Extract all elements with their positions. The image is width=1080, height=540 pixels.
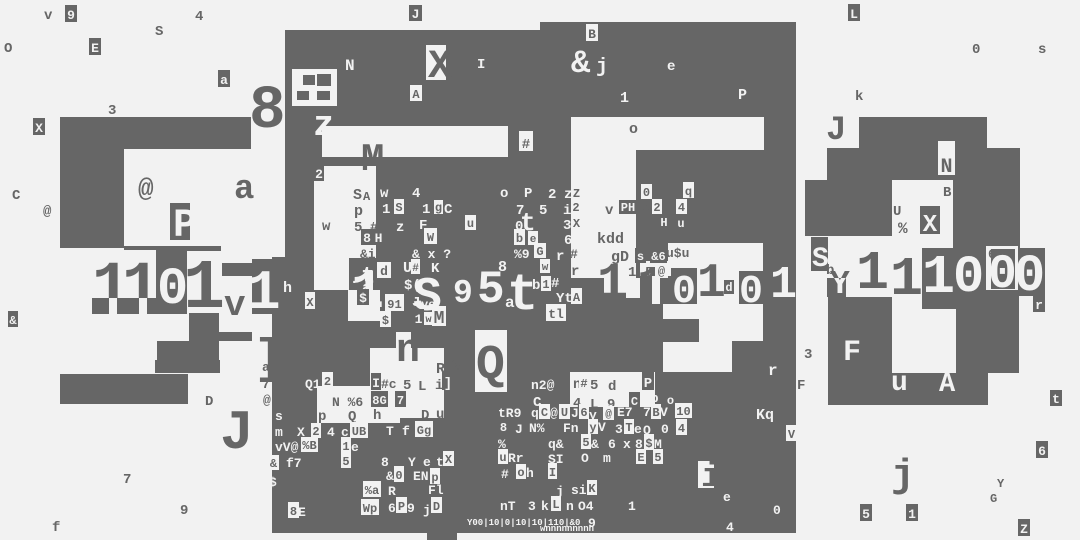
svg-text:1: 1: [890, 248, 923, 311]
svg-text:n: n: [566, 499, 574, 514]
svg-text:I: I: [477, 57, 485, 73]
svg-text:P: P: [738, 87, 747, 104]
svg-text:T: T: [814, 229, 820, 240]
svg-text:n: n: [396, 329, 420, 374]
svg-text:2: 2: [548, 187, 556, 203]
svg-text:$: $: [382, 314, 389, 328]
svg-text:d: d: [608, 379, 616, 395]
svg-text:L: L: [850, 7, 858, 22]
svg-text:0: 0: [953, 248, 984, 307]
svg-text:G: G: [990, 492, 997, 506]
svg-text:j: j: [423, 503, 431, 518]
svg-text:1: 1: [122, 253, 160, 325]
svg-text:J: J: [515, 422, 523, 437]
svg-text:S: S: [395, 201, 402, 215]
svg-text:&: &: [386, 469, 394, 484]
svg-text:5: 5: [654, 451, 661, 465]
svg-text:r: r: [768, 362, 778, 380]
svg-text:1: 1: [770, 260, 797, 311]
svg-text:8: 8: [381, 455, 389, 470]
svg-text:e: e: [723, 490, 731, 505]
svg-text:b: b: [371, 307, 379, 323]
svg-text:1: 1: [415, 312, 423, 327]
svg-text:k: k: [669, 218, 677, 233]
svg-text:7: 7: [397, 394, 404, 408]
svg-text:D: D: [205, 394, 213, 410]
svg-text:v: v: [44, 8, 53, 24]
svg-text:5: 5: [590, 378, 598, 394]
svg-text:3: 3: [108, 103, 116, 119]
svg-text:w: w: [380, 186, 389, 202]
svg-text:M: M: [434, 309, 445, 329]
svg-text:4: 4: [678, 201, 685, 215]
svg-text:f: f: [402, 424, 410, 439]
svg-text:1: 1: [908, 507, 916, 522]
svg-text:o: o: [500, 186, 508, 202]
svg-text:p: p: [354, 203, 363, 220]
svg-text:4: 4: [327, 425, 335, 440]
svg-text:z: z: [396, 220, 404, 236]
svg-text:u: u: [677, 217, 684, 231]
svg-text:#: #: [522, 137, 530, 153]
svg-text:]: ]: [444, 376, 452, 392]
svg-text:7: 7: [123, 472, 131, 488]
svg-text:U: U: [893, 204, 901, 220]
svg-text:e: e: [351, 440, 359, 455]
svg-text:2: 2: [312, 425, 319, 439]
svg-text:J: J: [571, 406, 579, 421]
svg-text:#: #: [551, 276, 559, 292]
svg-text:A: A: [363, 190, 371, 204]
svg-text:10: 10: [676, 405, 690, 419]
svg-text:7: 7: [262, 377, 270, 392]
svg-text:6: 6: [1038, 444, 1046, 459]
svg-text:#c: #c: [381, 377, 397, 392]
svg-text:q&: q&: [548, 437, 564, 452]
svg-text:Q: Q: [261, 490, 269, 505]
svg-text:o: o: [667, 394, 674, 408]
svg-text:r: r: [556, 249, 564, 265]
svg-text:K: K: [588, 482, 596, 496]
svg-text:5: 5: [582, 436, 589, 450]
svg-text:w: w: [425, 315, 431, 326]
svg-text:6: 6: [988, 247, 996, 262]
svg-text:&6: &6: [651, 250, 665, 264]
svg-text:1: 1: [922, 246, 955, 309]
svg-text:f7: f7: [286, 456, 302, 471]
svg-text:tR9: tR9: [498, 406, 522, 421]
svg-text:si: si: [571, 483, 587, 498]
svg-text:&: &: [591, 437, 599, 452]
svg-text:a: a: [220, 73, 228, 88]
svg-text:z: z: [313, 105, 335, 146]
svg-text:y: y: [589, 421, 596, 435]
svg-text:%a: %a: [365, 484, 379, 498]
svg-text:P: P: [644, 376, 652, 392]
svg-text:4: 4: [412, 186, 420, 202]
svg-text:&: &: [571, 45, 591, 82]
svg-text:1: 1: [247, 261, 281, 325]
svg-text:91: 91: [387, 298, 401, 312]
svg-text:9: 9: [67, 8, 75, 23]
svg-text:i: i: [701, 459, 721, 497]
svg-text:w: w: [542, 262, 549, 274]
svg-text:1: 1: [382, 202, 390, 218]
svg-text:0: 0: [972, 42, 980, 58]
svg-text:V: V: [788, 428, 796, 442]
svg-text:b: b: [532, 278, 540, 294]
svg-text:0: 0: [672, 270, 696, 315]
svg-text:V: V: [598, 420, 606, 435]
svg-text:@: @: [263, 393, 271, 408]
svg-text:B: B: [588, 27, 596, 42]
svg-text:C: C: [444, 202, 453, 218]
svg-text:x: x: [623, 437, 631, 452]
svg-text:2: 2: [315, 167, 323, 182]
svg-text:4: 4: [726, 520, 734, 535]
svg-text:Kq: Kq: [756, 407, 774, 424]
svg-text:N%: N%: [529, 421, 545, 436]
svg-text:N: N: [345, 57, 355, 75]
svg-text:h: h: [373, 408, 381, 424]
svg-text:u: u: [891, 368, 908, 399]
svg-text:1: 1: [628, 265, 636, 281]
svg-text:@: @: [43, 204, 52, 220]
svg-text:2: 2: [324, 375, 331, 389]
svg-text:d: d: [725, 281, 732, 295]
svg-text:Rr: Rr: [508, 451, 524, 466]
svg-text:a: a: [505, 294, 515, 312]
svg-text:0: 0: [395, 469, 402, 483]
svg-text:kdd: kdd: [597, 231, 624, 248]
svg-text:Fl: Fl: [428, 483, 444, 498]
svg-text:E: E: [91, 41, 99, 56]
svg-text:Q1: Q1: [305, 377, 321, 392]
svg-text:1: 1: [342, 440, 349, 454]
svg-text:Y: Y: [408, 455, 416, 470]
svg-text:&: &: [270, 457, 278, 471]
svg-text:&: &: [643, 202, 652, 218]
svg-text:F: F: [797, 378, 805, 394]
svg-text:h: h: [283, 280, 292, 297]
svg-text:wnnnnnnnnn: wnnnnnnnnn: [540, 524, 594, 534]
svg-text:I: I: [549, 466, 556, 480]
svg-text:%9: %9: [514, 247, 530, 262]
svg-text:b: b: [826, 263, 834, 279]
svg-text:6: 6: [580, 406, 587, 420]
svg-text:#: #: [412, 263, 419, 275]
svg-text:O4: O4: [578, 499, 594, 514]
svg-text:u: u: [436, 407, 444, 423]
svg-text:m: m: [603, 451, 611, 466]
svg-text:R: R: [388, 484, 396, 499]
svg-text:L: L: [552, 498, 559, 512]
svg-text:u: u: [499, 451, 506, 465]
svg-text:$: $: [359, 291, 367, 306]
svg-text:W: W: [427, 231, 435, 245]
svg-text:b: b: [516, 232, 523, 246]
svg-text:A: A: [412, 88, 420, 102]
svg-text:$: $: [645, 437, 652, 451]
svg-text:Gg: Gg: [417, 424, 431, 438]
svg-text:H: H: [375, 231, 383, 246]
svg-text:9: 9: [453, 275, 473, 312]
svg-text:X: X: [573, 217, 581, 231]
svg-text:8: 8: [249, 77, 286, 146]
svg-text:s: s: [1038, 42, 1046, 58]
svg-text:E: E: [298, 505, 306, 520]
svg-text:@: @: [658, 265, 665, 279]
svg-text:Y: Y: [997, 477, 1005, 491]
svg-text:q: q: [531, 406, 539, 421]
svg-text:3: 3: [804, 347, 812, 363]
svg-text:gD: gD: [611, 249, 629, 266]
svg-text:5: 5: [539, 203, 547, 219]
svg-text:r: r: [571, 264, 579, 280]
svg-text:X: X: [428, 45, 452, 90]
svg-text:Z: Z: [1020, 522, 1028, 537]
svg-text:$(: $(: [404, 278, 421, 294]
svg-text:@: @: [605, 409, 612, 421]
svg-text:P: P: [524, 186, 532, 202]
svg-text:B: B: [652, 406, 659, 420]
svg-text:5: 5: [862, 507, 870, 522]
svg-text:O: O: [581, 451, 589, 466]
svg-text:1: 1: [620, 90, 629, 107]
svg-text:s: s: [275, 409, 283, 424]
svg-text:e: e: [667, 59, 675, 75]
svg-text:#: #: [580, 377, 587, 391]
svg-text:A: A: [573, 291, 581, 305]
svg-text:g: g: [435, 201, 442, 215]
svg-text:vV@: vV@: [275, 440, 299, 455]
svg-text:1: 1: [183, 250, 225, 329]
svg-text:X: X: [306, 296, 314, 310]
svg-text:mp: mp: [643, 391, 659, 406]
svg-text:j: j: [891, 454, 915, 499]
svg-text:0: 0: [661, 422, 669, 437]
svg-text:o: o: [629, 121, 638, 138]
svg-text:5: 5: [342, 455, 349, 469]
svg-text:Q: Q: [476, 339, 505, 393]
svg-text:8G: 8G: [372, 394, 386, 408]
svg-text:D: D: [433, 500, 440, 514]
svg-text:4: 4: [195, 9, 203, 25]
svg-text:j: j: [596, 56, 608, 79]
svg-text:K: K: [431, 261, 440, 277]
svg-text:#: #: [570, 247, 578, 262]
svg-text:m: m: [275, 425, 283, 440]
svg-text:E7: E7: [617, 405, 633, 420]
svg-text:5: 5: [645, 265, 653, 281]
svg-text:I: I: [372, 376, 380, 391]
svg-text:8: 8: [290, 505, 297, 519]
svg-text:t: t: [1052, 392, 1060, 407]
svg-text:s: s: [637, 250, 644, 264]
svg-text:X: X: [35, 121, 43, 136]
svg-text:L: L: [418, 379, 426, 395]
svg-text:E: E: [637, 451, 644, 465]
svg-text:0: 0: [773, 503, 781, 518]
svg-text:H: H: [660, 216, 667, 230]
svg-text:d: d: [380, 264, 388, 279]
svg-text:PH: PH: [621, 201, 635, 215]
svg-text:%: %: [898, 220, 908, 238]
svg-text:M: M: [361, 138, 384, 182]
svg-text:S: S: [155, 24, 163, 40]
svg-text:1: 1: [542, 278, 549, 292]
svg-text:P: P: [398, 500, 405, 514]
svg-text:U: U: [561, 406, 568, 420]
svg-text:9: 9: [407, 501, 415, 516]
svg-text:n2@: n2@: [531, 378, 555, 393]
svg-text:8: 8: [498, 259, 507, 276]
svg-text:v: v: [605, 203, 614, 219]
svg-text:w: w: [322, 219, 331, 235]
svg-text:8: 8: [363, 231, 371, 246]
svg-text:J: J: [220, 401, 254, 465]
svg-text:6: 6: [608, 437, 616, 452]
svg-text:.: .: [350, 272, 358, 288]
svg-text:1: 1: [628, 499, 636, 514]
svg-text:p: p: [431, 471, 438, 485]
svg-text:@: @: [138, 174, 154, 204]
svg-text:%B: %B: [302, 439, 316, 453]
svg-text:t: t: [436, 455, 444, 470]
svg-text:&i: &i: [360, 247, 376, 262]
svg-text:k: k: [855, 89, 863, 105]
svg-text:u$u: u$u: [666, 246, 689, 261]
svg-text:6: 6: [388, 501, 396, 516]
svg-text:EN: EN: [413, 469, 429, 484]
svg-text:Fn: Fn: [563, 421, 579, 436]
svg-text:v: v: [224, 285, 246, 326]
svg-text:4: 4: [678, 422, 685, 436]
svg-text:V: V: [660, 405, 668, 420]
svg-text:f: f: [52, 520, 60, 536]
svg-text:p: p: [318, 409, 326, 425]
svg-text:J: J: [412, 295, 420, 311]
svg-text:G: G: [536, 245, 543, 259]
svg-text:u: u: [467, 217, 474, 231]
svg-text:#: #: [501, 467, 509, 482]
svg-text:Z: Z: [573, 187, 580, 201]
svg-text:3: 3: [615, 422, 623, 437]
svg-text:k: k: [581, 218, 589, 234]
svg-text:X: X: [923, 212, 938, 239]
svg-text:a: a: [262, 360, 270, 375]
svg-text:A: A: [939, 370, 956, 400]
svg-text:U: U: [403, 260, 412, 277]
svg-text:N %6: N %6: [332, 395, 363, 410]
svg-text:8: 8: [500, 421, 507, 435]
svg-text:O: O: [4, 41, 12, 57]
svg-text:e: e: [634, 422, 642, 437]
svg-text:7: 7: [516, 203, 524, 219]
svg-text:2: 2: [653, 201, 660, 215]
svg-text:C: C: [541, 406, 548, 420]
svg-text:Wp: Wp: [363, 502, 377, 516]
svg-text:P: P: [173, 204, 197, 249]
svg-text:q: q: [685, 185, 692, 199]
svg-text:&: &: [9, 314, 17, 328]
svg-text:i: i: [563, 203, 571, 219]
svg-text:2: 2: [572, 201, 579, 215]
svg-text:S: S: [353, 187, 362, 204]
svg-text:F: F: [843, 336, 861, 370]
svg-text:N: N: [940, 156, 952, 179]
svg-text:7: 7: [651, 218, 659, 234]
svg-text:X: X: [445, 453, 453, 467]
svg-text:3: 3: [528, 499, 536, 514]
svg-text:9: 9: [180, 503, 188, 519]
svg-text:@: @: [550, 406, 558, 421]
svg-text:e: e: [423, 455, 431, 470]
svg-text:B: B: [943, 185, 952, 201]
svg-text:nT: nT: [500, 499, 516, 514]
svg-text:o: o: [517, 466, 524, 480]
svg-text:C: C: [12, 188, 21, 204]
svg-text:J: J: [412, 7, 420, 22]
svg-text:3: 3: [563, 218, 571, 234]
svg-text:7: 7: [643, 405, 651, 420]
svg-text:1: 1: [422, 202, 430, 218]
svg-text:1: 1: [697, 257, 726, 311]
svg-text:J: J: [826, 112, 846, 150]
svg-text:T: T: [386, 424, 394, 439]
svg-text:h: h: [526, 466, 534, 481]
svg-text:a: a: [234, 171, 254, 209]
svg-text:UB: UB: [352, 425, 366, 439]
svg-text:T: T: [625, 421, 632, 435]
svg-text:tl: tl: [548, 307, 564, 322]
svg-text:$: $: [269, 475, 277, 490]
svg-text:0: 0: [643, 186, 650, 200]
svg-text:k: k: [541, 499, 549, 514]
svg-text:r: r: [1035, 298, 1043, 313]
svg-text:1: 1: [856, 242, 889, 305]
svg-text:0: 0: [739, 270, 763, 315]
